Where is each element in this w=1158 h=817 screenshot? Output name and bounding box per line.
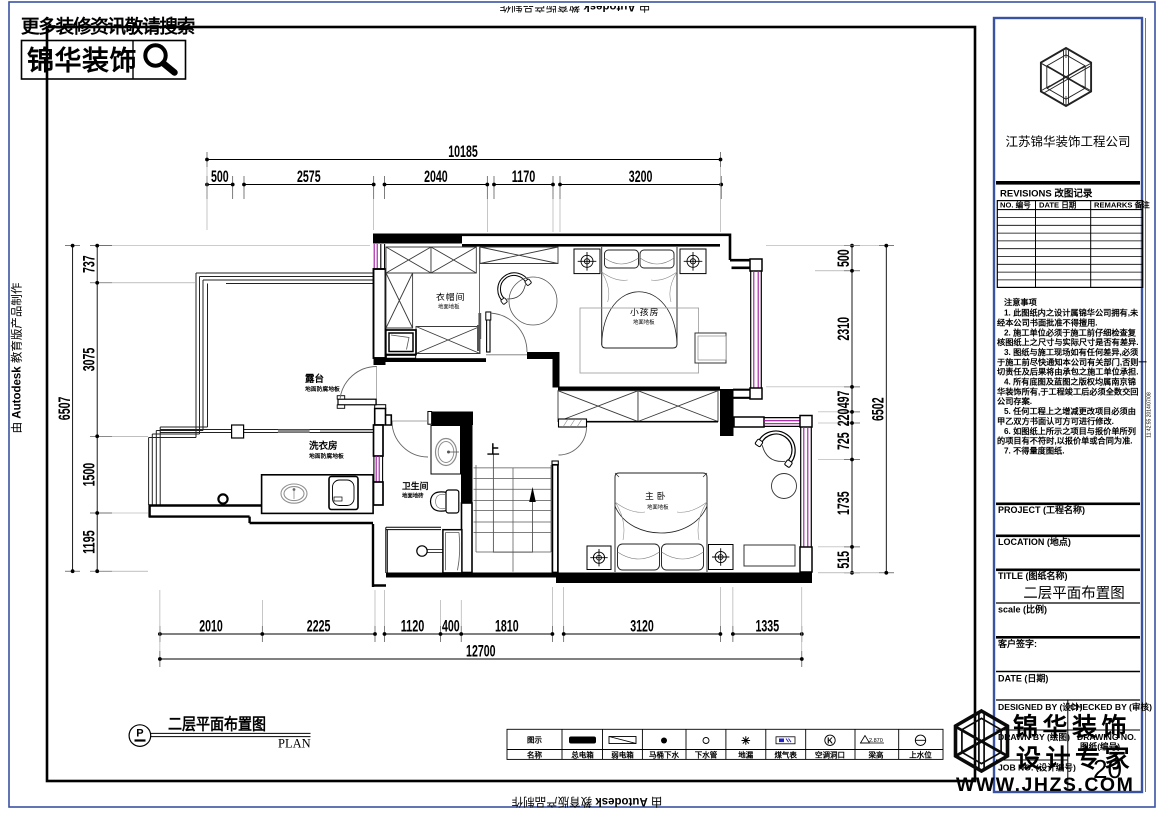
svg-text:设计专家: 设计专家 [1016, 744, 1134, 773]
svg-text:由 Autodesk 教育版产品制作: 由 Autodesk 教育版产品制作 [10, 282, 24, 433]
svg-text:DATE (日期): DATE (日期) [998, 673, 1048, 684]
svg-text:REVISIONS 改图记录: REVISIONS 改图记录 [1000, 188, 1093, 200]
svg-text:2225: 2225 [307, 618, 331, 636]
svg-text:地面地砖: 地面地砖 [402, 492, 424, 500]
svg-text:2.870: 2.870 [869, 738, 883, 744]
svg-text:3120: 3120 [630, 618, 654, 636]
svg-text:10185: 10185 [448, 143, 478, 161]
svg-text:2. 施工单位必须于施工前仔细检查复: 2. 施工单位必须于施工前仔细检查复 [1004, 327, 1137, 337]
svg-text:5. 任何工程上之增减更改项目必须由: 5. 任何工程上之增减更改项目必须由 [1004, 406, 1136, 416]
svg-text:地面防腐地板: 地面防腐地板 [309, 452, 344, 460]
svg-text:图示: 图示 [527, 736, 542, 745]
svg-text:PLAN: PLAN [278, 737, 311, 751]
svg-text:12700: 12700 [466, 643, 496, 661]
svg-text:1735: 1735 [835, 491, 853, 515]
svg-text:煤气表: 煤气表 [774, 750, 797, 760]
svg-text:锦华装饰: 锦华装饰 [27, 45, 137, 76]
svg-text:名称: 名称 [527, 750, 542, 760]
svg-text:二层平面布置图: 二层平面布置图 [1023, 585, 1125, 602]
svg-text:1195: 1195 [81, 530, 99, 554]
svg-text:6502: 6502 [870, 397, 888, 421]
svg-text:500: 500 [835, 249, 853, 267]
svg-text:PROJECT (工程名称): PROJECT (工程名称) [998, 504, 1085, 515]
svg-text:1120: 1120 [401, 618, 425, 636]
svg-text:515: 515 [835, 551, 853, 569]
svg-text:2010: 2010 [199, 618, 223, 636]
svg-text:WWW.JHZS.COM: WWW.JHZS.COM [956, 774, 1134, 796]
svg-text:锦华装饰: 锦华装饰 [1013, 713, 1131, 742]
svg-text:CHECKED BY (审核): CHECKED BY (审核) [1070, 701, 1152, 712]
svg-text:卫生间: 卫生间 [402, 480, 429, 491]
svg-text:7. 不得量度图纸.: 7. 不得量度图纸. [1004, 446, 1065, 456]
svg-text:洗衣房: 洗衣房 [309, 440, 338, 452]
svg-text:497: 497 [835, 391, 853, 409]
svg-text:K: K [827, 736, 833, 745]
svg-text:TITLE (图纸名称): TITLE (图纸名称) [998, 570, 1068, 581]
svg-text:于施工前尽快通知本公司有关部门,否则一: 于施工前尽快通知本公司有关部门,否则一 [997, 357, 1147, 367]
svg-text:主卧: 主卧 [645, 490, 669, 501]
svg-text:3075: 3075 [81, 348, 99, 372]
svg-text:6. 如图纸上所示之项目与报价单所列: 6. 如图纸上所示之项目与报价单所列 [1004, 426, 1136, 436]
svg-text:二层平面布置图: 二层平面布置图 [168, 715, 266, 734]
svg-text:1335: 1335 [756, 618, 780, 636]
svg-text:LOCATION (地点): LOCATION (地点) [998, 536, 1071, 547]
svg-text:切责任及后果将由承包之施工单位承担.: 切责任及后果将由承包之施工单位承担. [997, 367, 1138, 377]
svg-text:地漏: 地漏 [738, 750, 753, 760]
svg-text:露台: 露台 [305, 373, 325, 385]
svg-text:公司存案.: 公司存案. [997, 396, 1032, 406]
svg-text:更多装修资讯敬请搜索: 更多装修资讯敬请搜索 [21, 16, 195, 37]
svg-text:4. 所有底图及蓝图之版权均属南京锦: 4. 所有底图及蓝图之版权均属南京锦 [1004, 377, 1136, 387]
svg-text:衣帽间: 衣帽间 [436, 291, 465, 302]
svg-text:地面地板: 地面地板 [647, 503, 669, 511]
svg-text:华装饰所有,于工程竣工后必须全数交回: 华装饰所有,于工程竣工后必须全数交回 [997, 386, 1138, 396]
svg-text:下水管: 下水管 [695, 750, 718, 760]
svg-text:6507: 6507 [56, 397, 74, 421]
svg-text:由 Autodesk 教育版产品制作: 由 Autodesk 教育版产品制作 [511, 795, 662, 809]
svg-text:上: 上 [487, 442, 500, 457]
svg-text:地面防腐地板: 地面防腐地板 [305, 385, 340, 393]
svg-text:scale (比例): scale (比例) [998, 604, 1047, 615]
svg-text:江苏锦华装饰工程公司: 江苏锦华装饰工程公司 [1005, 134, 1130, 149]
svg-text:2310: 2310 [835, 317, 853, 341]
svg-text:核图纸上之尺寸与实际尺寸是否有差异.: 核图纸上之尺寸与实际尺寸是否有差异. [997, 337, 1138, 347]
svg-text:地面地板: 地面地板 [633, 318, 655, 326]
svg-text:725: 725 [835, 432, 853, 450]
svg-text:注意事项: 注意事项 [1004, 297, 1038, 307]
svg-text:地面地板: 地面地板 [438, 303, 460, 311]
svg-text:1170: 1170 [512, 168, 536, 186]
svg-text:空调洞口: 空调洞口 [815, 750, 845, 760]
svg-text:220: 220 [835, 409, 853, 427]
svg-text:P: P [136, 728, 143, 740]
svg-text:梁高: 梁高 [868, 750, 884, 760]
svg-text:甲乙双方书面认可方可进行修改.: 甲乙双方书面认可方可进行修改. [997, 416, 1114, 426]
svg-text:11:42:55 2014/07/08: 11:42:55 2014/07/08 [1147, 392, 1153, 438]
svg-text:DATE 日期: DATE 日期 [1039, 200, 1077, 210]
svg-text:3. 图纸与施工现场如有任何差异,必须: 3. 图纸与施工现场如有任何差异,必须 [1004, 347, 1139, 357]
svg-text:1810: 1810 [495, 618, 519, 636]
svg-text:马桶下水: 马桶下水 [649, 750, 679, 760]
svg-text:1. 此图纸内之设计属锦华公司拥有,未: 1. 此图纸内之设计属锦华公司拥有,未 [1004, 308, 1139, 318]
svg-text:的项目有不符时,以报价单或合同为准.: 的项目有不符时,以报价单或合同为准. [997, 436, 1133, 446]
svg-text:3200: 3200 [629, 168, 653, 186]
svg-text:上水位: 上水位 [909, 750, 932, 760]
svg-text:弱电箱: 弱电箱 [611, 750, 634, 760]
svg-text:2040: 2040 [424, 168, 448, 186]
svg-text:客户签字:: 客户签字: [997, 638, 1037, 649]
svg-text:2575: 2575 [297, 168, 321, 186]
svg-text:500: 500 [211, 168, 229, 186]
svg-text:经本公司书面批准不得擅用.: 经本公司书面批准不得擅用. [997, 317, 1098, 327]
svg-text:737: 737 [81, 255, 99, 273]
svg-text:总电箱: 总电箱 [571, 750, 594, 760]
svg-text:1500: 1500 [81, 463, 99, 487]
svg-text:400: 400 [442, 618, 460, 636]
svg-text:REMARKS 备注: REMARKS 备注 [1094, 200, 1150, 210]
svg-text:NO. 编号: NO. 编号 [1000, 200, 1031, 210]
